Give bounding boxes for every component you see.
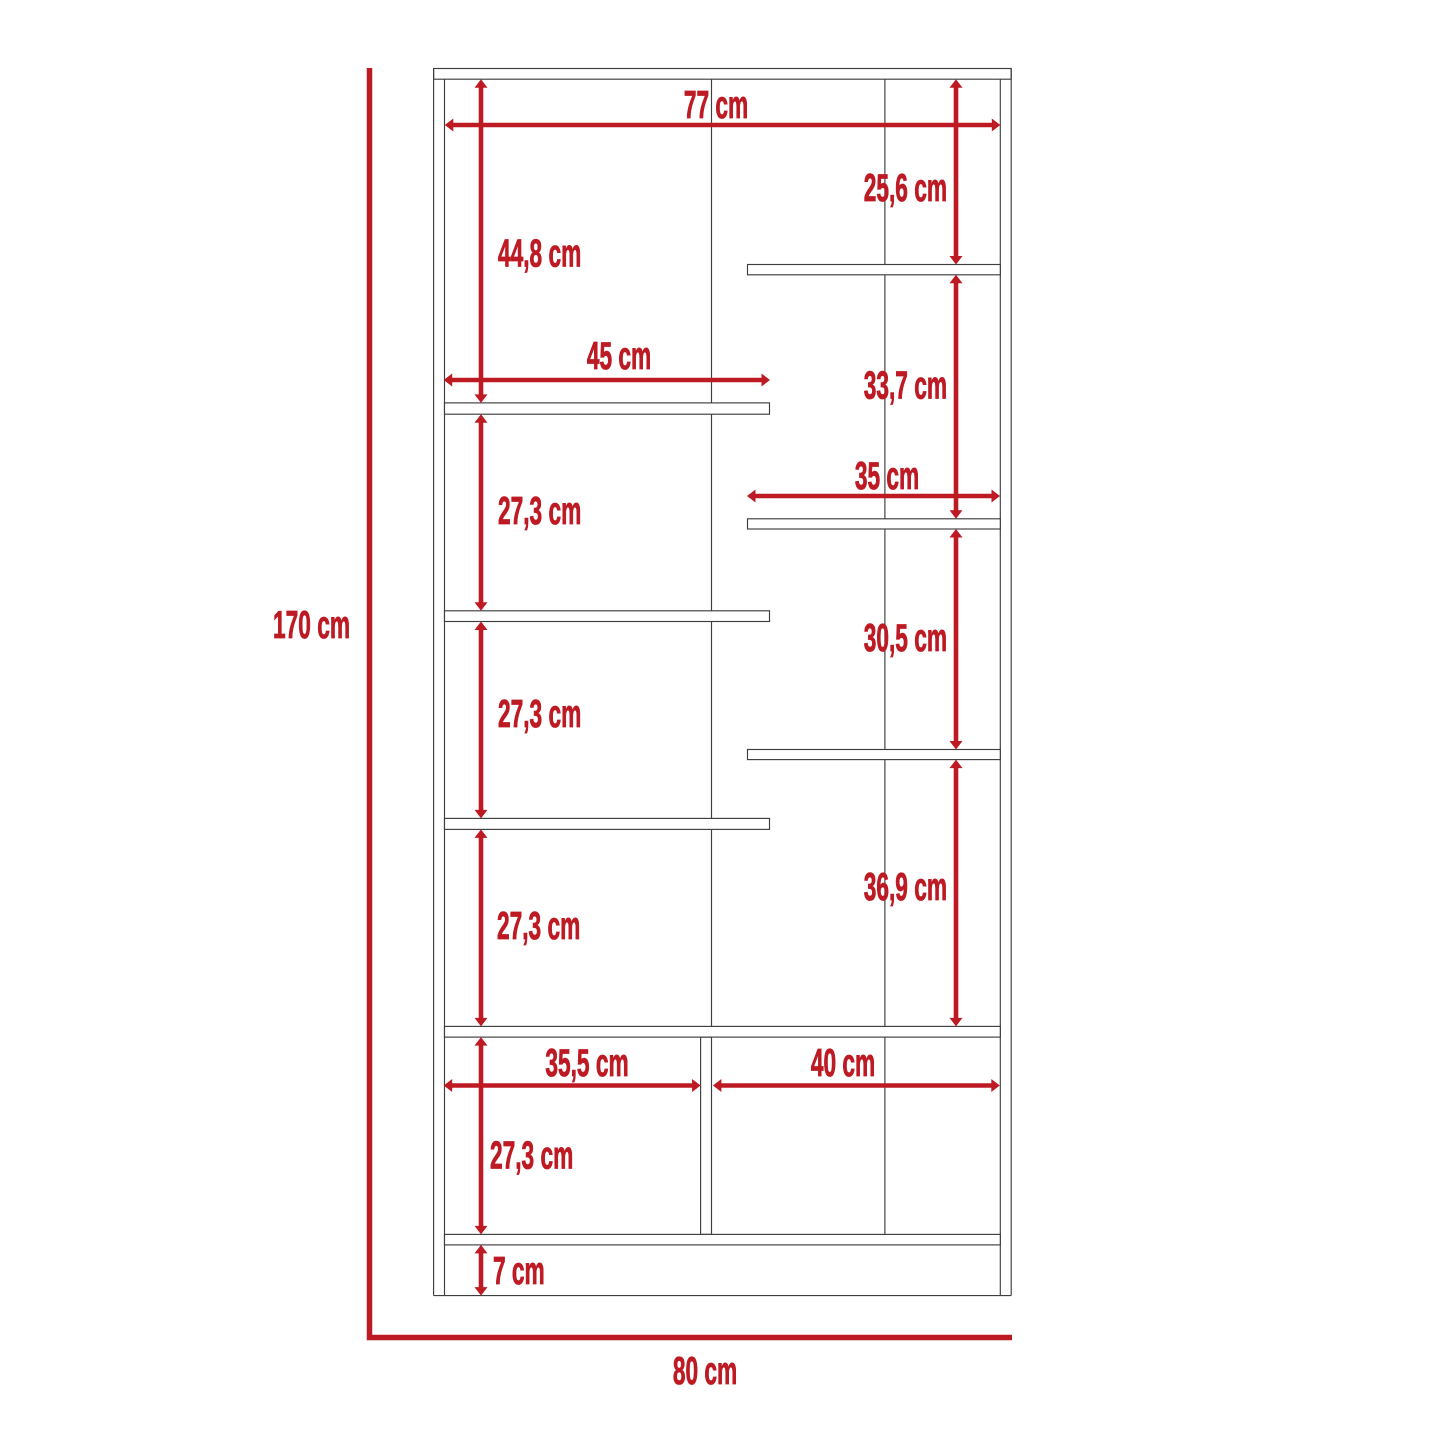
svg-text:170 cm: 170 cm xyxy=(273,603,350,647)
svg-text:36,9 cm: 36,9 cm xyxy=(864,865,947,909)
svg-text:27,3 cm: 27,3 cm xyxy=(498,489,581,533)
svg-text:80 cm: 80 cm xyxy=(673,1349,737,1393)
svg-text:27,3 cm: 27,3 cm xyxy=(490,1133,573,1177)
svg-text:35,5 cm: 35,5 cm xyxy=(545,1041,628,1085)
svg-text:77 cm: 77 cm xyxy=(684,83,748,127)
svg-text:25,6 cm: 25,6 cm xyxy=(864,166,947,210)
svg-text:45 cm: 45 cm xyxy=(587,334,651,378)
svg-text:27,3 cm: 27,3 cm xyxy=(497,904,580,948)
svg-text:35 cm: 35 cm xyxy=(855,454,919,498)
svg-text:44,8 cm: 44,8 cm xyxy=(498,231,581,275)
svg-text:33,7 cm: 33,7 cm xyxy=(864,363,947,407)
svg-text:40 cm: 40 cm xyxy=(811,1041,875,1085)
svg-text:7 cm: 7 cm xyxy=(493,1249,545,1293)
svg-text:27,3 cm: 27,3 cm xyxy=(498,692,581,736)
svg-text:30,5 cm: 30,5 cm xyxy=(864,616,947,660)
